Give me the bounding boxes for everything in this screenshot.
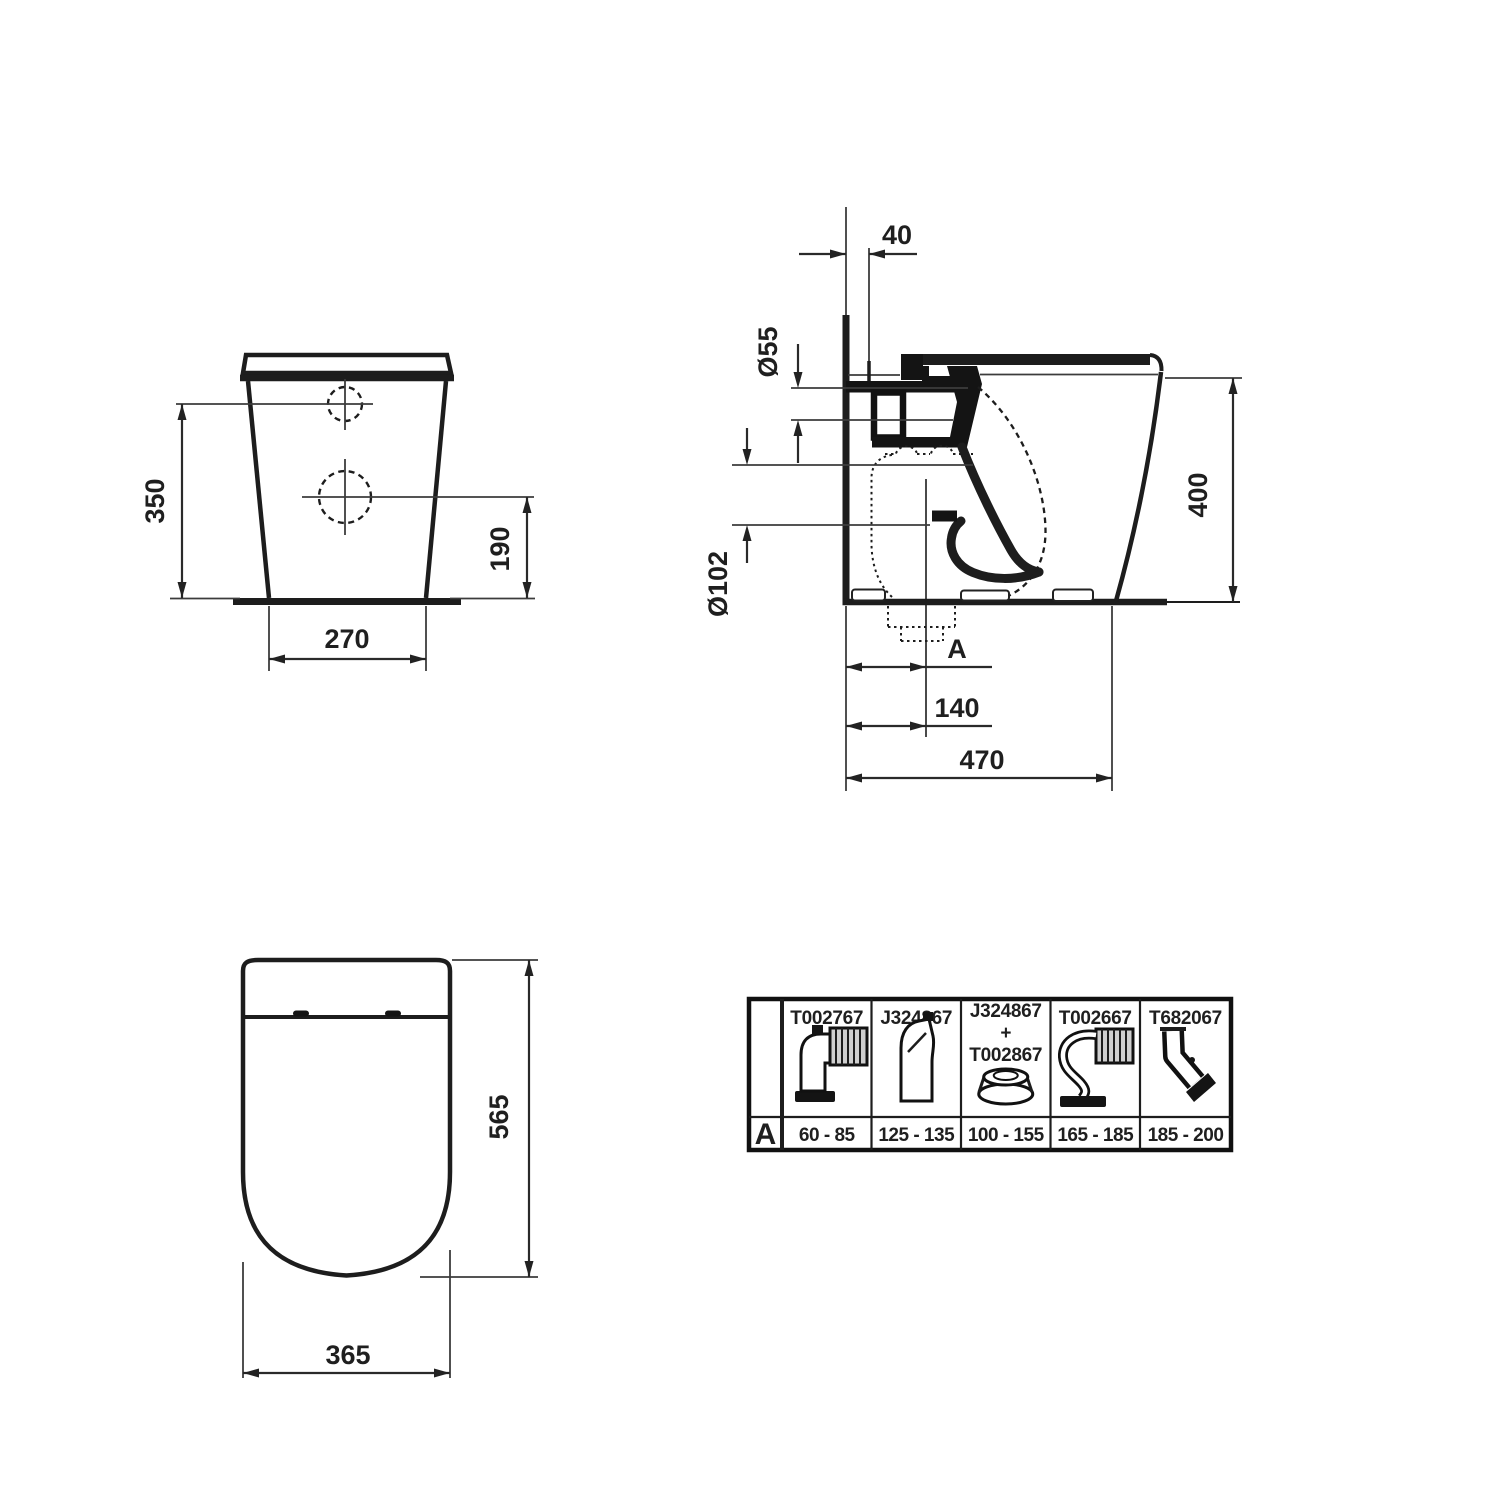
pipe-body [801, 1034, 830, 1091]
arrowhead [910, 663, 926, 672]
dim-label-140: 140 [934, 693, 979, 723]
arrowhead [743, 525, 752, 541]
range-value: 60 - 85 [799, 1125, 856, 1146]
range-value: 100 - 155 [968, 1125, 1045, 1146]
arrowhead [846, 722, 862, 731]
dim-140: 140 [846, 693, 992, 731]
dim-label-d102: Ø102 [703, 551, 733, 617]
dim-label-565: 565 [484, 1094, 514, 1139]
arrowhead [525, 1261, 534, 1277]
arrowhead [243, 1369, 259, 1378]
dim-470: 470 [846, 745, 1112, 783]
foot-pad-middle [961, 591, 1009, 601]
bowl-front-profile [1116, 372, 1161, 601]
range-value: 165 - 185 [1057, 1125, 1134, 1146]
arrowhead [269, 655, 285, 664]
body-left-side [248, 381, 269, 598]
pipe-body [901, 1019, 934, 1101]
dim-label-270: 270 [324, 624, 369, 654]
arrowhead [869, 250, 885, 259]
range-value: 185 - 200 [1148, 1125, 1224, 1146]
top-view-drawing: 565 365 [243, 960, 538, 1378]
pipe-nub [923, 1012, 933, 1021]
dim-label-d55: Ø55 [753, 326, 783, 377]
sump-outline-dotted [872, 455, 893, 597]
rim-front-corner [1150, 355, 1162, 371]
arrowhead [794, 420, 803, 436]
arrowhead [846, 663, 862, 672]
foot-pad-rear [852, 590, 885, 601]
bend-dot [1189, 1057, 1195, 1063]
seat-outline [243, 960, 450, 1276]
arrowhead [1229, 378, 1238, 394]
flange [795, 1091, 835, 1102]
dim-A: A [846, 634, 992, 672]
hinge-mark-left [293, 1011, 309, 1017]
technical-drawing-page: 350 190 270 40 [0, 0, 1500, 1500]
hinge-mark-right [385, 1011, 401, 1017]
inlet-socket [874, 393, 903, 438]
arrowhead [178, 404, 187, 420]
arrowhead [410, 655, 426, 664]
flange-base [979, 1084, 1033, 1104]
dim-270: 270 [269, 606, 426, 671]
plus-sign: + [1000, 1023, 1011, 1044]
flange-adapter-icon [979, 1069, 1033, 1104]
cistern-top-band [243, 355, 451, 373]
accessory-table: A T002767 J324867 J324867 + T002867 T002… [749, 999, 1231, 1151]
part-number: T682067 [1149, 1008, 1222, 1029]
dim-label-470: 470 [959, 745, 1004, 775]
dim-outlet-d102: Ø102 [703, 428, 973, 617]
part-number: T002667 [1059, 1008, 1132, 1029]
dim-label-365: 365 [325, 1340, 370, 1370]
arrowhead [178, 582, 187, 598]
arrowhead [434, 1369, 450, 1378]
dim-40: 40 [799, 220, 917, 259]
part-number: T002767 [790, 1008, 863, 1029]
pipe-nub [812, 1025, 823, 1034]
dim-label-400: 400 [1183, 472, 1213, 517]
dim-label-A: A [947, 634, 967, 664]
dim-label-40: 40 [882, 220, 912, 250]
dim-350: 350 [140, 404, 240, 599]
side-view-drawing: 40 Ø5 [703, 207, 1242, 791]
arrowhead [794, 372, 803, 388]
dim-400: 400 [1165, 378, 1242, 602]
trap-channel-upper [962, 447, 1039, 572]
trap-weir-bar [932, 511, 957, 522]
arrowhead [525, 960, 534, 976]
floor-outlet-stub-dashed [888, 606, 955, 641]
dim-190: 190 [450, 497, 535, 599]
flush-valve-body [947, 366, 982, 447]
arrowhead [1229, 586, 1238, 602]
arrowhead [910, 722, 926, 731]
range-value: 125 - 135 [878, 1125, 955, 1146]
arrowhead [1096, 774, 1112, 783]
arrowhead [523, 497, 532, 513]
body-right-side [426, 381, 446, 598]
foot-pad-front [1053, 590, 1093, 602]
front-view-drawing: 350 190 270 [140, 355, 535, 671]
wc-dimension-drawing: 350 190 270 40 [0, 0, 1500, 1500]
hinge-bracket [922, 366, 952, 383]
arrowhead [523, 582, 532, 598]
dim-365: 365 [243, 1250, 450, 1378]
arrowhead [743, 449, 752, 465]
seat-hinge-block [901, 354, 923, 380]
flange [1060, 1096, 1106, 1107]
table-row-label: A [755, 1118, 777, 1151]
dim-label-190: 190 [485, 526, 515, 571]
part-number: T002867 [969, 1045, 1042, 1066]
arrowhead [830, 250, 846, 259]
part-number: J324867 [970, 1001, 1042, 1022]
dim-label-350: 350 [140, 478, 170, 523]
arrowhead [846, 774, 862, 783]
